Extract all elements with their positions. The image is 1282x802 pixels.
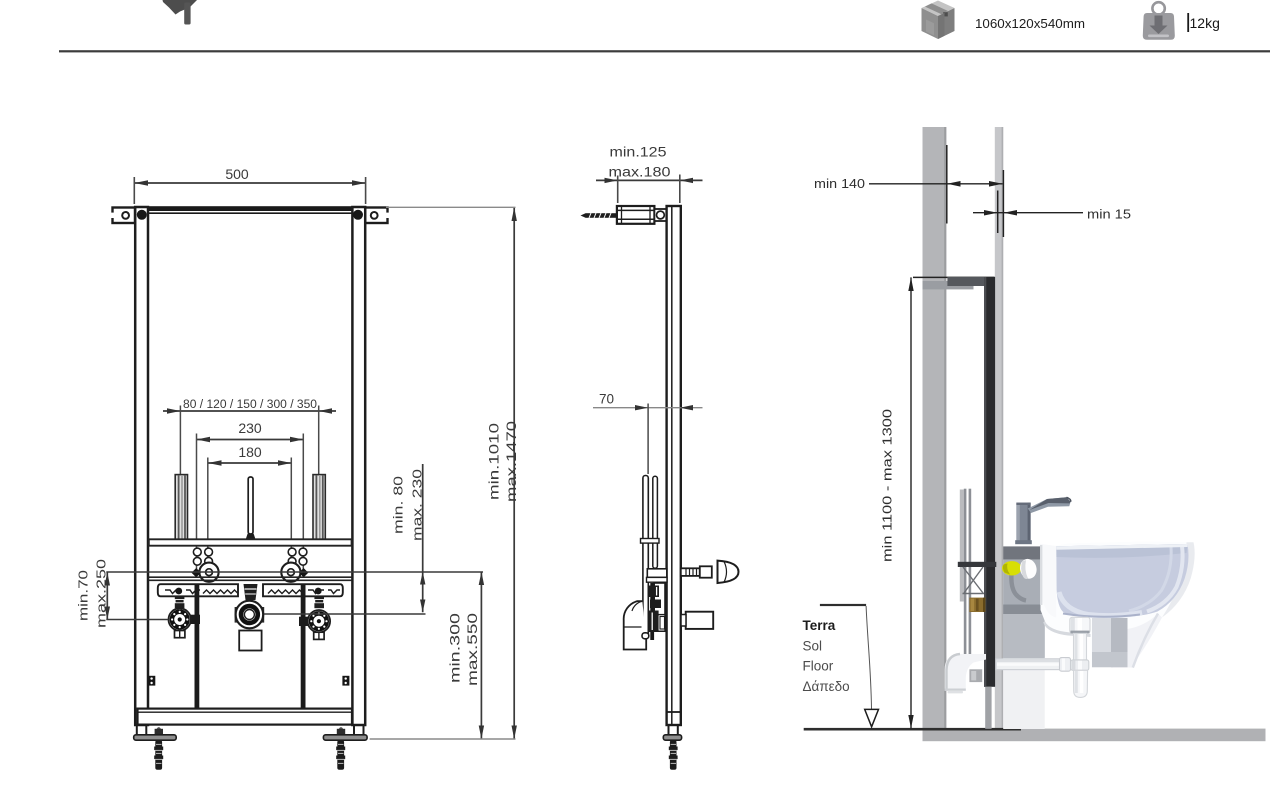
svg-text:1060x120x540mm: 1060x120x540mm — [975, 16, 1085, 31]
svg-text:Floor: Floor — [803, 659, 834, 674]
svg-text:max.1470: max.1470 — [503, 421, 519, 502]
svg-text:min.125: min.125 — [610, 145, 667, 160]
svg-text:12kg: 12kg — [1190, 15, 1220, 31]
svg-text:min 15: min 15 — [1087, 207, 1131, 222]
svg-text:min.70: min.70 — [76, 570, 91, 621]
svg-text:min 140: min 140 — [814, 176, 865, 191]
svg-text:230: 230 — [238, 420, 262, 436]
svg-text:min 1100 - max 1300: min 1100 - max 1300 — [880, 409, 895, 562]
svg-text:min. 80: min. 80 — [391, 476, 406, 534]
svg-text:max.550: max.550 — [464, 613, 480, 686]
svg-text:Δάπεδο: Δάπεδο — [803, 679, 850, 694]
svg-text:min.300: min.300 — [447, 613, 463, 683]
svg-text:70: 70 — [599, 392, 614, 407]
svg-text:80 / 120 / 150 / 300 / 350: 80 / 120 / 150 / 300 / 350 — [183, 397, 317, 411]
svg-text:500: 500 — [225, 166, 249, 182]
svg-text:max.250: max.250 — [94, 559, 109, 628]
svg-text:Sol: Sol — [803, 639, 823, 654]
svg-text:180: 180 — [238, 444, 262, 460]
svg-text:Terra: Terra — [803, 618, 836, 633]
svg-text:min.1010: min.1010 — [486, 423, 502, 500]
